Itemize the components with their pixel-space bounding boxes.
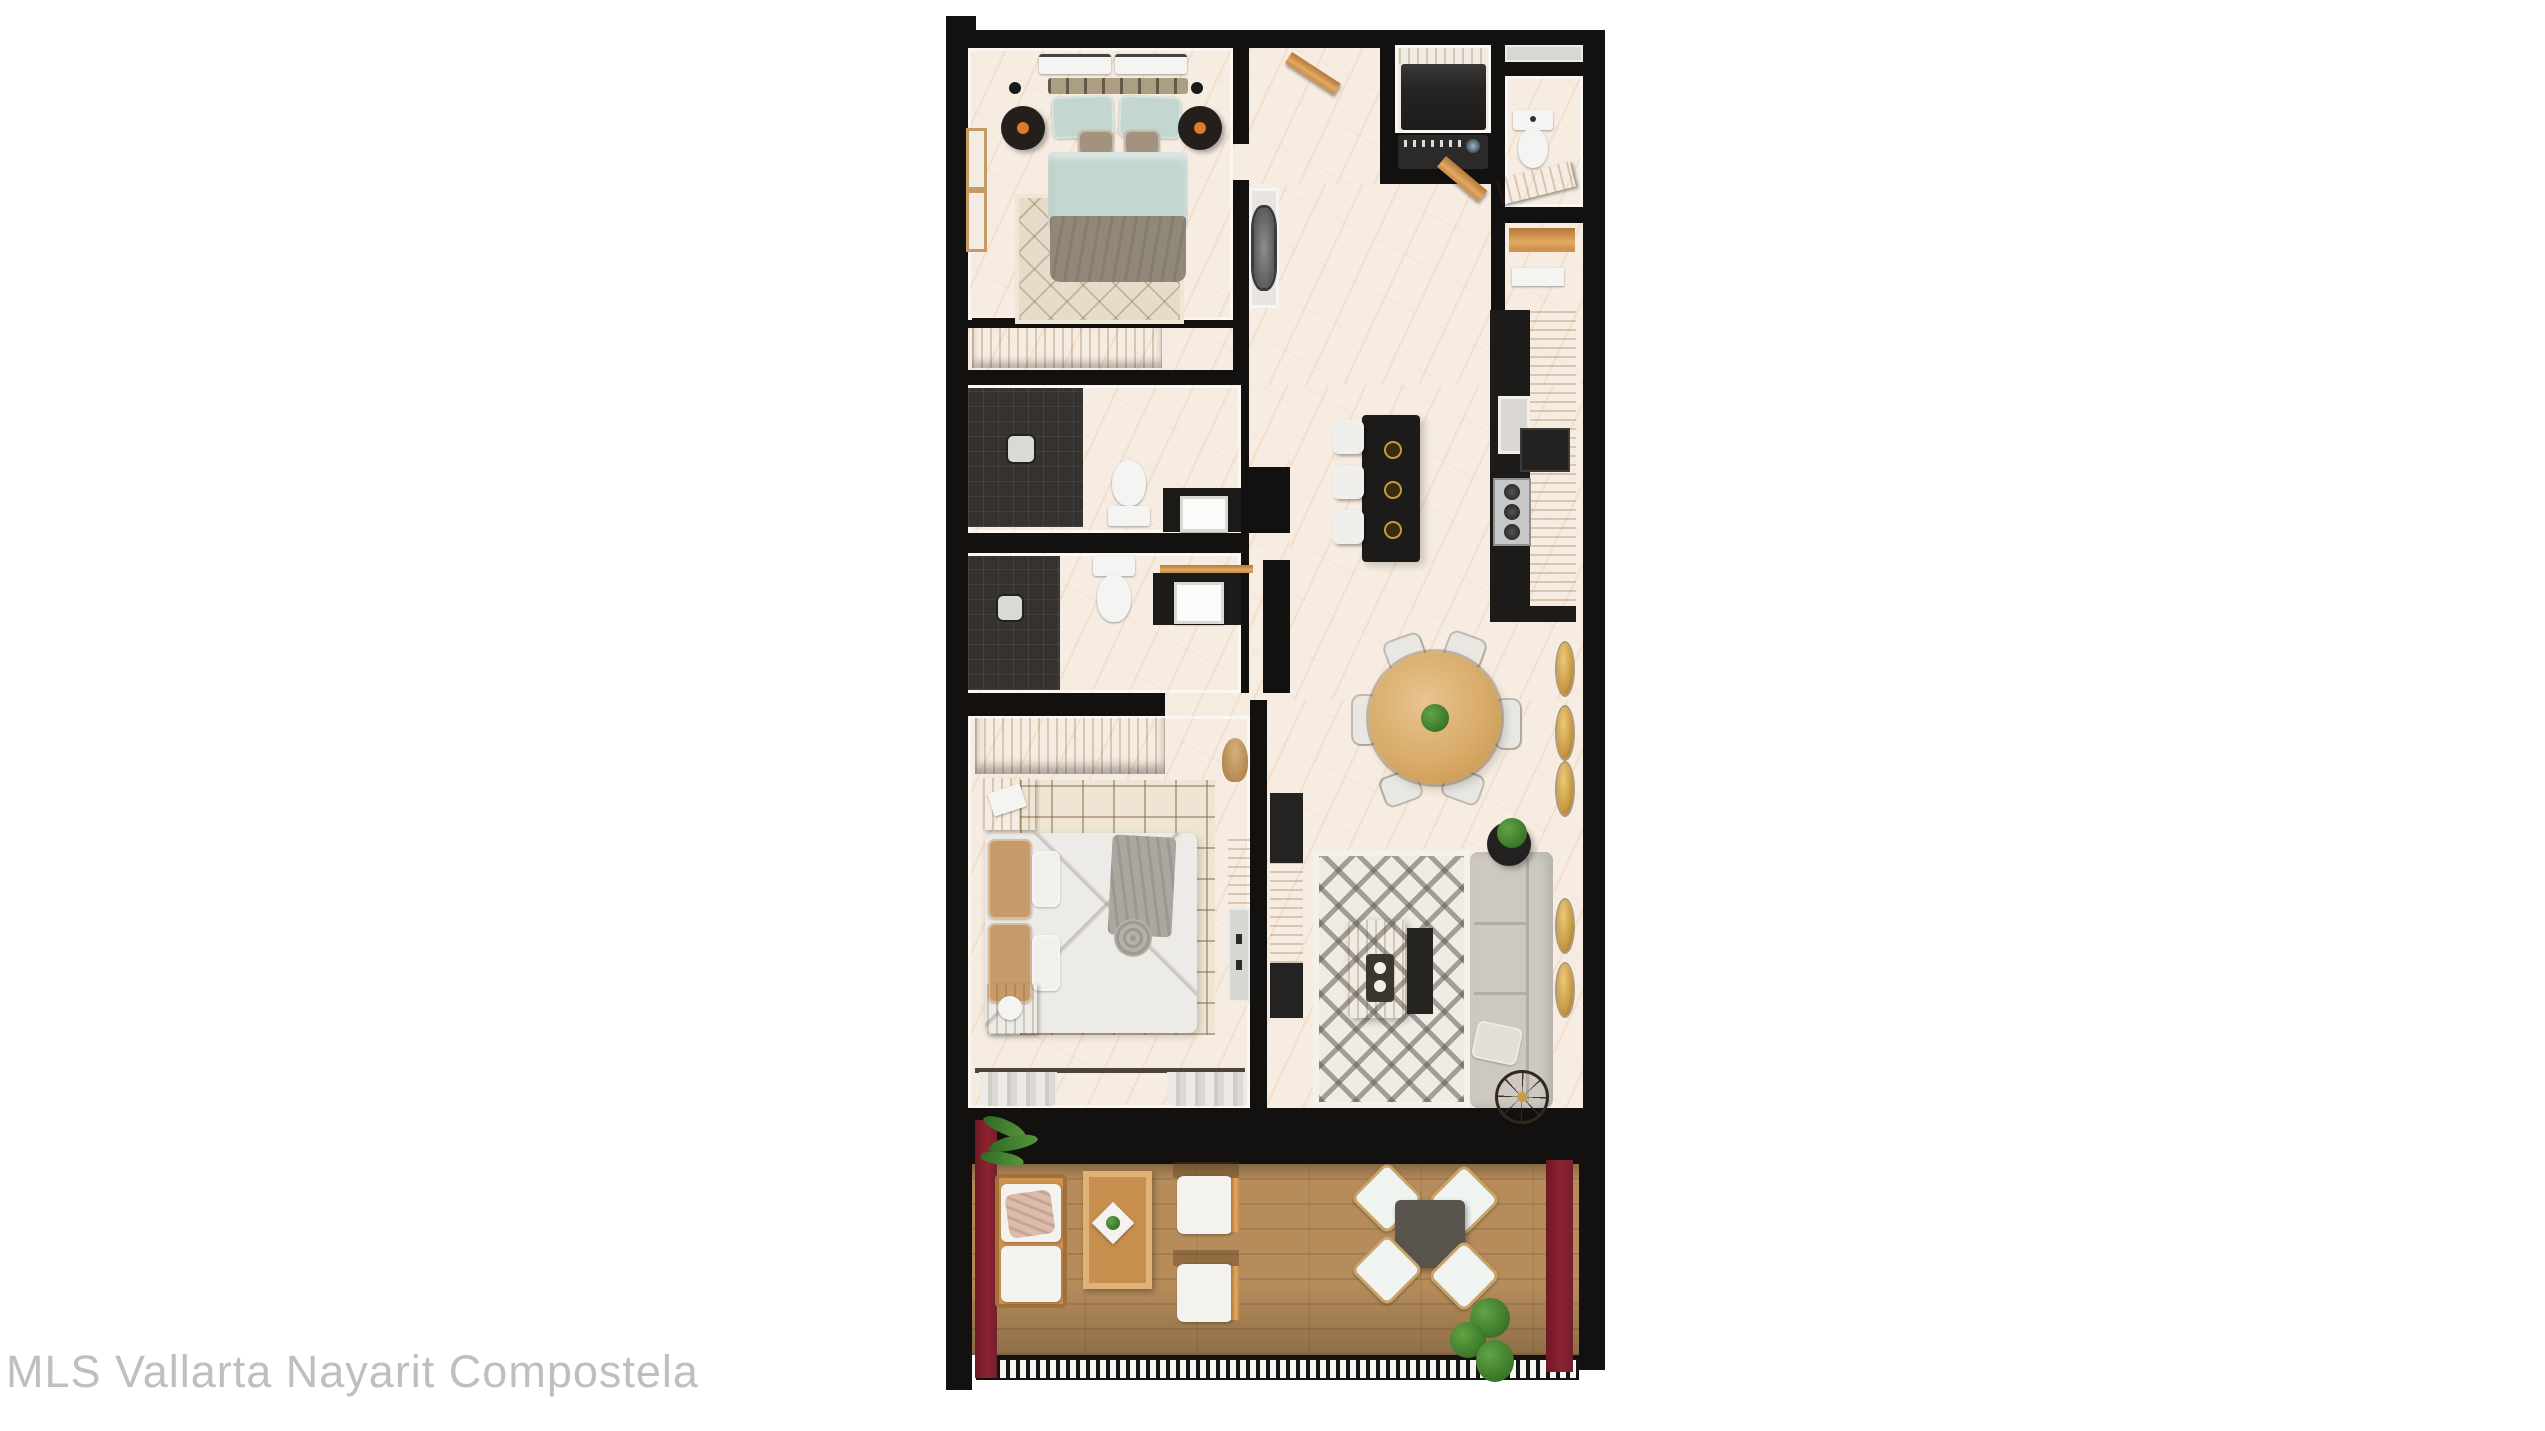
tv-unit-bottom (1270, 963, 1303, 1018)
plant-blob-3 (1476, 1340, 1514, 1382)
hanging-clothes-left (979, 1072, 1057, 1106)
hall-floor (1249, 184, 1491, 385)
pantry-shelf (1509, 228, 1575, 252)
tv-unit-middle (1270, 863, 1303, 963)
decorative-wheel (1495, 1070, 1549, 1124)
candle-right (1194, 122, 1206, 134)
wheel-hub (1517, 1092, 1527, 1102)
watermark-text: MLS Vallarta Nayarit Compostela (6, 1346, 699, 1398)
dried-plant (1222, 738, 1248, 782)
pantry-drawer (1512, 268, 1564, 286)
island-knob-1 (1384, 441, 1402, 459)
bathroom2-shower-head (998, 596, 1022, 620)
outdoor-table-plant (1106, 1216, 1120, 1230)
standing-mirror (1254, 208, 1274, 288)
burner-1 (1504, 484, 1520, 500)
washer-door (1466, 139, 1480, 153)
outdoor-sofa-cushion-2 (1001, 1246, 1061, 1302)
wall-sconce-4 (1557, 900, 1573, 952)
bar-stool-3 (1332, 510, 1364, 544)
bedroom2-desk (1228, 908, 1250, 1002)
corridor-wall-lower (1263, 560, 1290, 693)
island-knob-3 (1384, 521, 1402, 539)
bedroom2-closet (975, 718, 1165, 774)
armchair1-frame (1231, 1178, 1239, 1232)
bathroom2-toilet-bowl (1097, 574, 1131, 622)
bar-stool-1 (1332, 420, 1364, 454)
bathroom1-toilet-bowl (1112, 460, 1146, 506)
kitchen-counter-end (1490, 606, 1576, 622)
terrace-plant-top-left (980, 1114, 1040, 1178)
bedroom2-dresser (1228, 838, 1250, 904)
dining-centerpiece-plant (1421, 704, 1449, 732)
bedroom2-small-pillow-1 (1032, 851, 1060, 907)
wall-sconce-3 (1557, 763, 1573, 815)
desk-handle-2 (1236, 960, 1242, 970)
outdoor-sofa-blanket (1004, 1189, 1056, 1239)
corridor-wall-upper (1241, 467, 1290, 533)
burner-3 (1504, 524, 1520, 540)
master-bed (1048, 78, 1188, 282)
bathroom2-toilet-tank (1093, 556, 1135, 576)
wall-frame-2 (966, 190, 987, 252)
wall-frame-1 (966, 128, 987, 190)
bathroom2-shower (968, 556, 1060, 690)
bathroom2-sink (1174, 582, 1224, 624)
terrace-right-wall (1579, 1164, 1605, 1370)
outdoor-armchair-2 (1177, 1264, 1233, 1322)
kitchen-island (1362, 415, 1420, 562)
bedroom2-door-gap (1165, 693, 1250, 716)
bedroom-window-vent-2 (1115, 54, 1187, 74)
bedroom1-door-gap (1233, 144, 1249, 180)
sofa-backrest-line (1526, 858, 1529, 1102)
bedroom2-throw-swirl (1114, 919, 1152, 957)
powder-toilet-bowl (1518, 128, 1548, 168)
plant-leaf-3 (979, 1149, 1024, 1168)
utility-appliance (1401, 64, 1486, 130)
bathroom2-shelf (1160, 565, 1253, 573)
bar-stool-2 (1332, 465, 1364, 499)
terrace-plant-bottom-right (1442, 1298, 1518, 1384)
utility-shelf (1399, 48, 1487, 64)
headboard (1048, 78, 1188, 94)
sectional-sofa (1470, 852, 1553, 1108)
sofa-seam-1 (1474, 922, 1526, 925)
terrace-red-wall-right (1546, 1160, 1573, 1372)
outdoor-armchair-1 (1177, 1176, 1233, 1234)
sofa-seam-2 (1474, 992, 1526, 995)
candle-left (1017, 122, 1029, 134)
coffee-table-runner (1407, 928, 1433, 1014)
throw-blanket (1050, 216, 1186, 282)
bedroom2-small-pillow-2 (1032, 935, 1060, 991)
side-table-plant (1497, 818, 1527, 848)
cup-2 (1374, 980, 1386, 992)
wall-sconce-1 (1557, 643, 1573, 695)
washer-control-panel (1404, 140, 1462, 147)
pendant-lamp-left-icon (1009, 82, 1021, 94)
fridge (1520, 428, 1570, 472)
armchair2-frame (1231, 1266, 1239, 1320)
top-left-wall-step (946, 16, 976, 36)
outdoor-sofa (995, 1174, 1067, 1308)
master-wardrobe (972, 328, 1162, 368)
stove (1493, 478, 1531, 546)
island-knob-2 (1384, 481, 1402, 499)
terrace-left-wall (946, 1164, 972, 1390)
wall-sconce-5 (1557, 964, 1573, 1016)
bedroom2-pillow-1 (988, 839, 1032, 919)
bedroom-window-vent-1 (1039, 54, 1111, 74)
top-right-closet-floor (1505, 45, 1583, 62)
burner-2 (1504, 504, 1520, 520)
desk-handle-1 (1236, 934, 1242, 944)
powder-toilet-button (1530, 116, 1536, 122)
pendant-lamp-right-icon (1191, 82, 1203, 94)
wall-sconce-2 (1557, 707, 1573, 759)
cup-1 (1374, 962, 1386, 974)
table-lamp (998, 996, 1022, 1020)
hanging-clothes-right (1167, 1072, 1247, 1106)
tv-unit-top (1270, 793, 1303, 863)
coffee-table-tray (1366, 954, 1394, 1002)
floor-plan (946, 16, 1607, 1400)
bathroom1-toilet-tank (1108, 506, 1150, 526)
bathroom1-shower-head (1008, 436, 1034, 462)
sofa-pillow (1471, 1020, 1524, 1067)
bathroom1-sink (1180, 496, 1228, 532)
